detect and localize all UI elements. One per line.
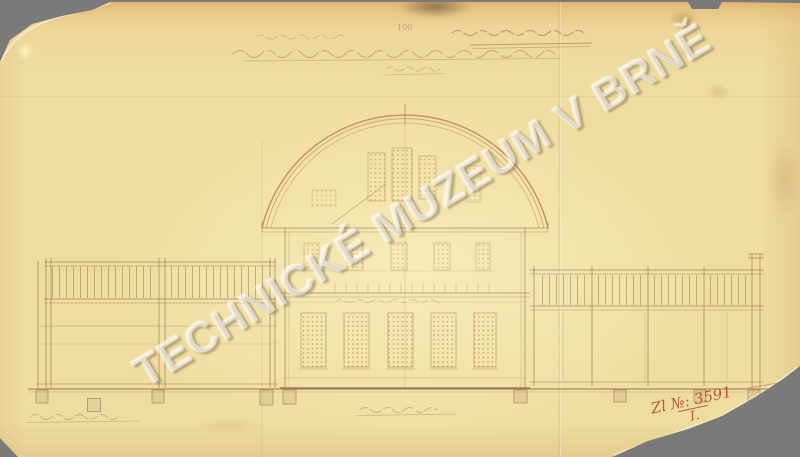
right-fence-drawing xyxy=(530,254,764,388)
bottom-left-caption xyxy=(26,415,140,423)
scale-note-text: 100 xyxy=(397,23,412,32)
bottom-center-caption xyxy=(356,408,455,416)
title-handwriting xyxy=(233,31,592,76)
stamp-mark xyxy=(87,398,101,412)
paper-sheet: 100 xyxy=(0,0,800,457)
architectural-elevation-drawing: 100 xyxy=(0,0,800,457)
archive-series-text: I. xyxy=(679,405,711,427)
lattice-windows xyxy=(299,148,498,369)
left-fence-drawing xyxy=(36,258,278,388)
scanned-drawing-background: 100 xyxy=(0,0,800,457)
